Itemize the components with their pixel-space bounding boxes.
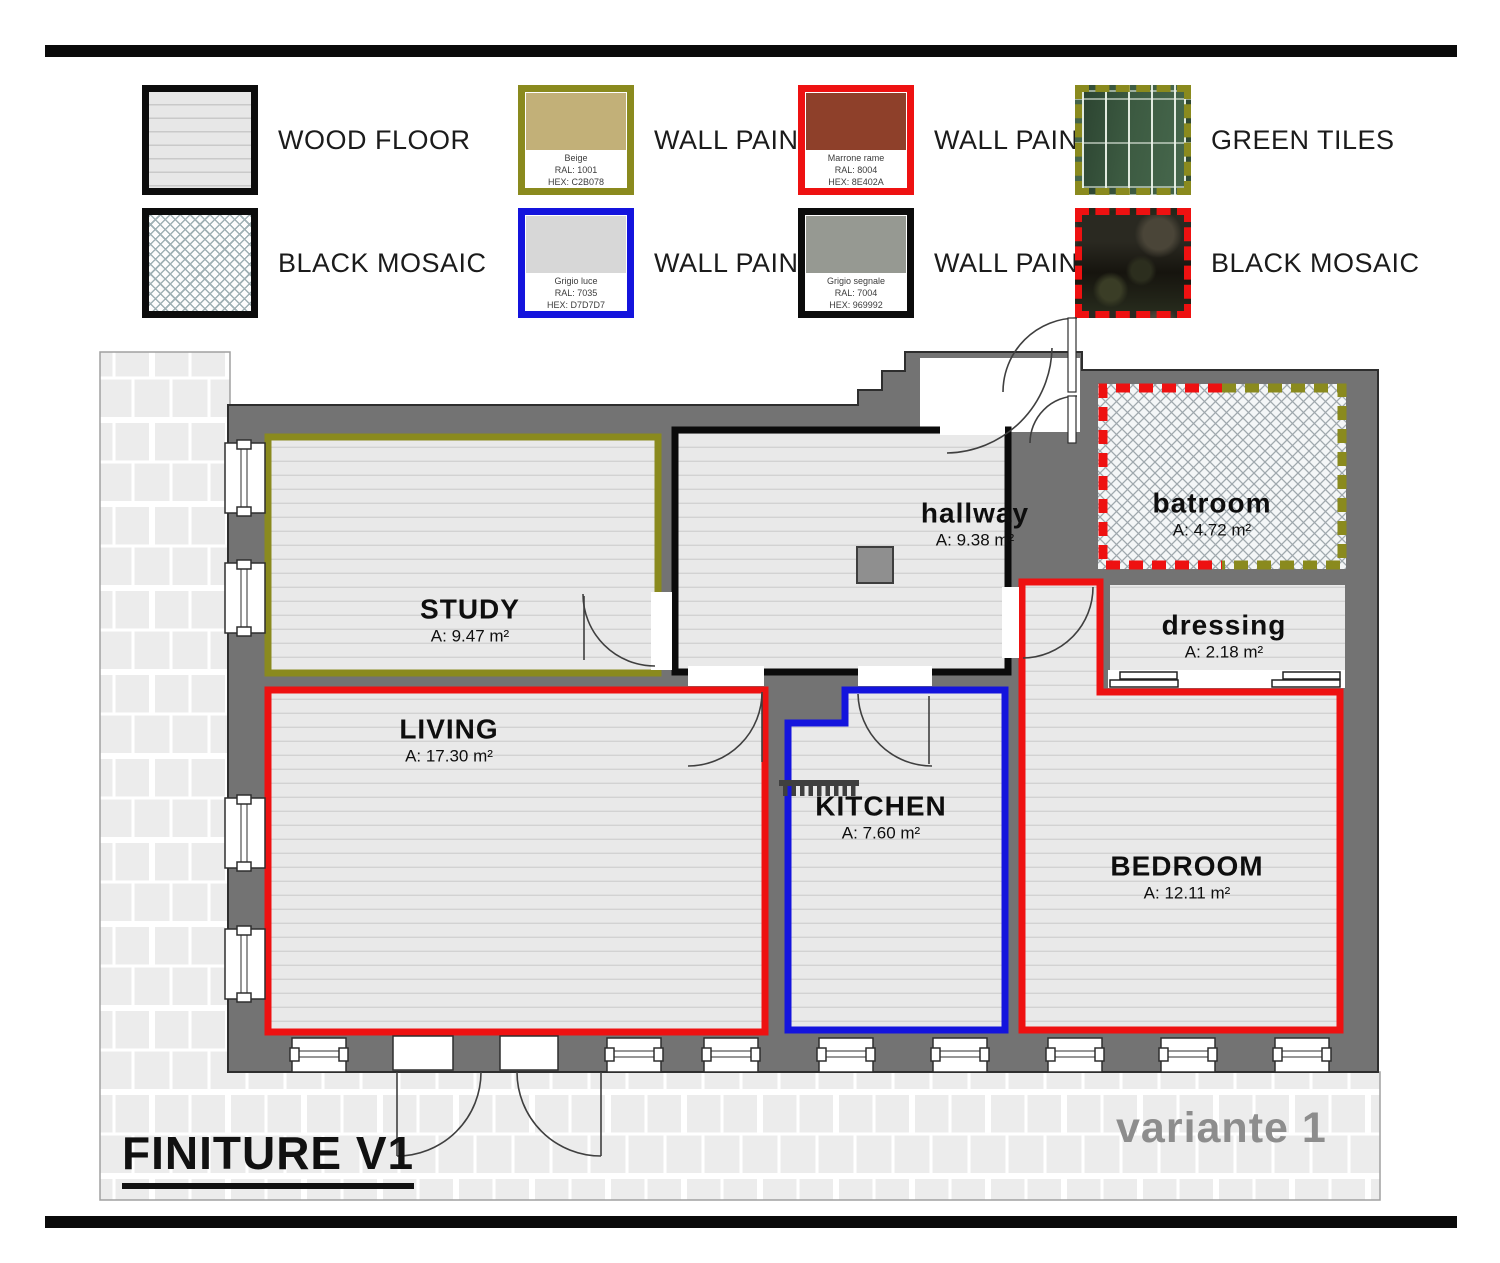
window	[225, 926, 265, 1002]
room-kitchen	[788, 690, 1005, 1030]
hallway-column	[857, 547, 893, 583]
window	[1273, 1038, 1331, 1072]
door-opening-kitchen	[858, 666, 932, 686]
room-living	[268, 690, 765, 1032]
room-area-study: A: 9.47 m²	[420, 627, 520, 647]
room-area-hallway: A: 9.38 m²	[921, 531, 1029, 551]
door-opening-entrance	[940, 425, 1005, 435]
window	[702, 1038, 760, 1072]
room-label-dressing: dressing A: 2.18 m²	[1162, 610, 1287, 663]
room-label-living: LIVING A: 17.30 m²	[399, 714, 498, 767]
room-label-kitchen: KITCHEN A: 7.60 m²	[815, 791, 946, 844]
room-area-kitchen: A: 7.60 m²	[815, 824, 946, 844]
window	[225, 795, 265, 871]
room-name-study: STUDY	[420, 594, 520, 626]
window	[817, 1038, 875, 1072]
room-name-bathroom: batroom	[1153, 488, 1272, 520]
window	[290, 1038, 348, 1072]
door-opening-study	[651, 592, 672, 670]
room-name-dressing: dressing	[1162, 610, 1287, 642]
room-label-bathroom: batroom A: 4.72 m²	[1153, 488, 1272, 541]
window	[931, 1038, 989, 1072]
room-hallway	[675, 430, 1008, 672]
room-area-bathroom: A: 4.72 m²	[1153, 521, 1272, 541]
window	[225, 440, 265, 516]
entrance-door-leaf-upper	[1068, 318, 1076, 392]
room-bathroom	[1098, 384, 1346, 569]
window	[1046, 1038, 1104, 1072]
drawing-title: FINITURE V1	[122, 1126, 414, 1189]
room-label-hallway: hallway A: 9.38 m²	[921, 498, 1029, 551]
door-opening-bedroom	[1002, 587, 1019, 658]
french-door-opening	[393, 1036, 453, 1070]
door-opening-living	[688, 666, 764, 686]
window	[605, 1038, 663, 1072]
room-label-study: STUDY A: 9.47 m²	[420, 594, 520, 647]
window	[1159, 1038, 1217, 1072]
variant-title: variante 1	[1116, 1104, 1327, 1153]
window	[225, 560, 265, 636]
room-name-hallway: hallway	[921, 498, 1029, 530]
entrance-door-leaf-lower	[1068, 396, 1076, 443]
room-area-dressing: A: 2.18 m²	[1162, 643, 1287, 663]
room-area-living: A: 17.30 m²	[399, 747, 498, 767]
room-area-bedroom: A: 12.11 m²	[1110, 884, 1263, 904]
entrance-vestibule	[920, 358, 1080, 432]
room-name-bedroom: BEDROOM	[1110, 851, 1263, 883]
room-name-living: LIVING	[399, 714, 498, 746]
room-name-kitchen: KITCHEN	[815, 791, 946, 823]
floor-plan-sheet: WOOD FLOOR BLACK MOSAIC Beige RAL: 1001 …	[0, 0, 1500, 1263]
room-label-bedroom: BEDROOM A: 12.11 m²	[1110, 851, 1263, 904]
french-door-opening	[500, 1036, 558, 1070]
